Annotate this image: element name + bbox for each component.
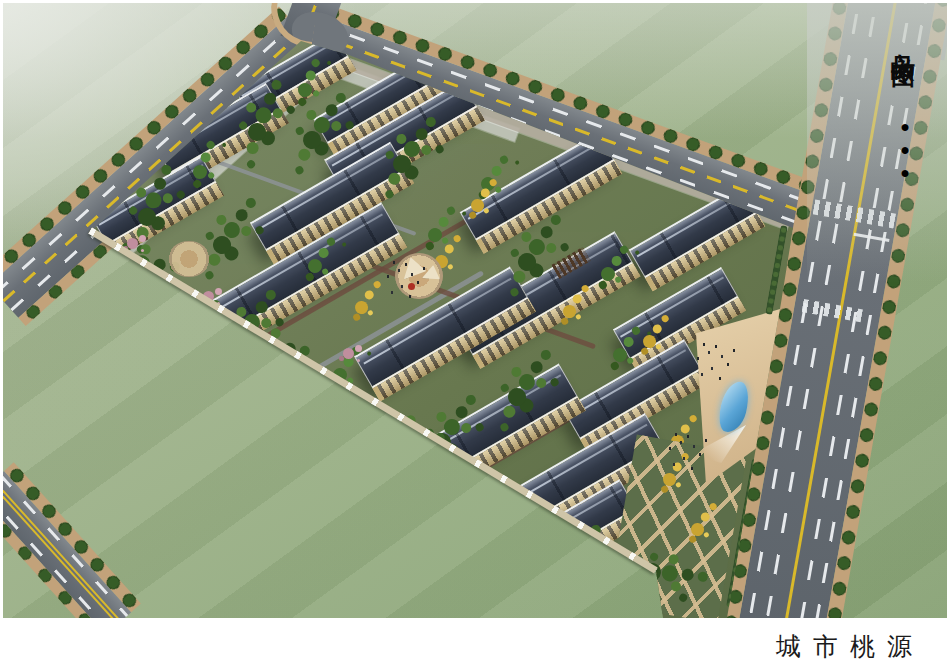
view-type-label: 鸟瞰图 [887, 35, 919, 50]
caption-strip: 城市桃源 [0, 618, 950, 671]
atmospheric-haze [807, 3, 947, 283]
people-figures [393, 261, 395, 264]
blossom-tree [343, 348, 354, 359]
blossom-tree [127, 238, 138, 249]
bullet-dot-icon: ● [887, 161, 923, 184]
bullet-dot-icon: ● [887, 115, 923, 138]
aerial-rendering: 鸟瞰图 ● ● ● [3, 3, 947, 618]
west-court-plaza [168, 241, 210, 277]
project-title: 城市桃源 [776, 630, 924, 663]
bullet-dot-icon: ● [887, 138, 923, 161]
rendering-page: 鸟瞰图 ● ● ● 城市桃源 [0, 0, 950, 671]
people-figures [703, 343, 705, 346]
people-figures [675, 433, 677, 436]
crosswalk [802, 299, 863, 322]
bullet-dots: ● ● ● [887, 115, 923, 184]
flower-bed [408, 283, 415, 290]
